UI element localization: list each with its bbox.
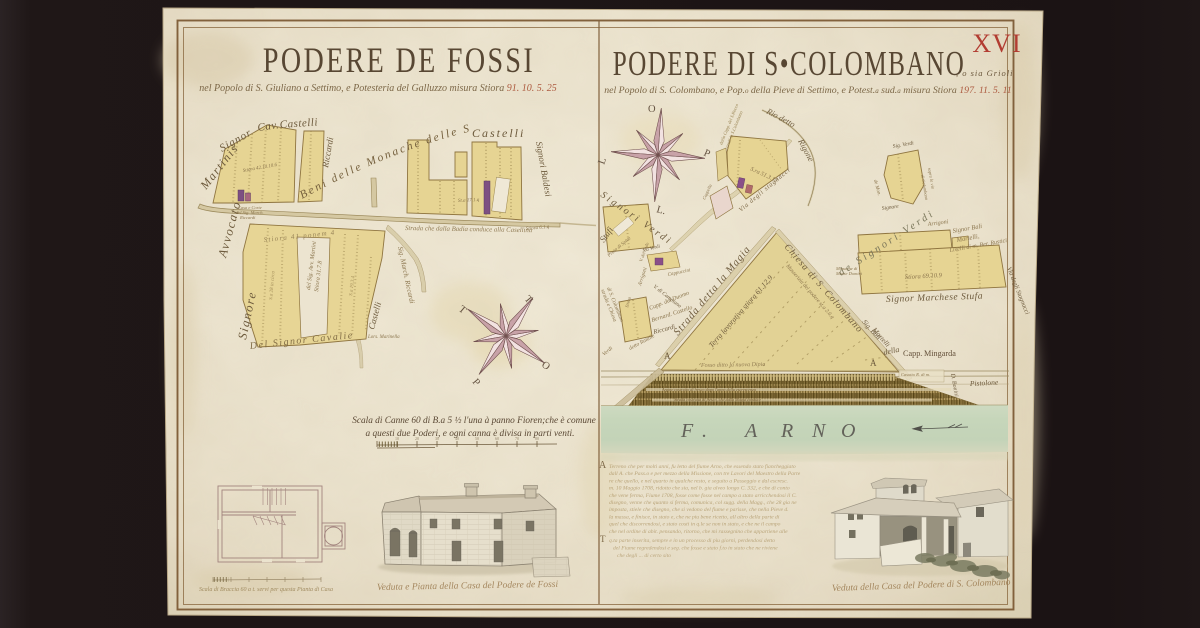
svg-text:la massa, e finisce, in stato: la massa, e finisce, in stato e, che ne … <box>609 513 780 520</box>
svg-text:20: 20 <box>415 436 419 441</box>
svg-text:80: 80 <box>535 436 539 441</box>
svg-text:Mingarda: Mingarda <box>924 349 956 358</box>
svg-text:Monte Domini: Monte Domini <box>835 271 863 276</box>
svg-text:quel che discorrendosi, e stat: quel che discorrendosi, e stato costi in… <box>609 522 781 528</box>
svg-text:40: 40 <box>455 436 459 441</box>
svg-text:del Fiume regredendosi e seg.: del Fiume regredendosi e seg. che fosse … <box>613 545 778 552</box>
svg-text:nel Popolo di S. Colombano, e: nel Popolo di S. Colombano, e Pop.o dell… <box>604 85 1011 96</box>
svg-text:disegno, venne che quanto si f: disegno, venne che quanto si ferma, comu… <box>609 499 797 506</box>
svg-text:70: 70 <box>515 436 519 441</box>
svg-text:T: T <box>600 534 606 544</box>
svg-text:dall A. che Pass.o e per mezzo: dall A. che Pass.o e per mezzo della Mis… <box>609 471 801 477</box>
svg-text:A: A <box>870 358 877 368</box>
svg-text:Pistolone: Pistolone <box>969 377 999 388</box>
svg-text:10: 10 <box>395 436 399 441</box>
svg-text:60: 60 <box>495 436 499 441</box>
svg-text:F: F <box>680 420 694 442</box>
svg-text:A: A <box>743 420 758 442</box>
svg-text:Castelli: Castelli <box>472 126 525 140</box>
svg-text:A: A <box>664 351 671 361</box>
svg-text:O: O <box>841 420 855 442</box>
svg-text:Fosso ditto la nuova Dipia: Fosso ditto la nuova Dipia <box>700 362 765 369</box>
svg-text:che nel ordine di abit. pensan: che nel ordine di abit. pensando, ritorn… <box>609 529 788 535</box>
svg-text:R: R <box>780 420 793 442</box>
svg-text:50: 50 <box>475 436 479 441</box>
svg-text:.: . <box>702 420 707 442</box>
svg-text:nel Popolo di S. Giuliano a Se: nel Popolo di S. Giuliano a Settimo, e P… <box>199 83 557 94</box>
svg-text:PODERE DE FOSSI: PODERE DE FOSSI <box>263 40 535 80</box>
svg-text:Lors. Marinella: Lors. Marinella <box>367 335 400 340</box>
svg-text:q.ta parte inserita, sempre e: q.ta parte inserita, sempre e in un proc… <box>609 538 775 544</box>
svg-text:imposta, stiele che disegno, c: imposta, stiele che disegno, che si vedo… <box>609 506 789 513</box>
svg-text:Casotto R. di m.: Casotto R. di m. <box>901 372 930 377</box>
svg-text:30: 30 <box>435 436 439 441</box>
svg-text:che vene ferma, Fiume 1708, fo: che vene ferma, Fiume 1708, fosse come f… <box>609 492 797 499</box>
svg-text:, o sia Grioli: , o sia Grioli <box>956 68 1013 78</box>
svg-text:Capp.: Capp. <box>903 349 922 358</box>
svg-text:XVI: XVI <box>972 29 1021 58</box>
svg-text:Argine costruito di fresco dop: Argine costruito di fresco dopo l'anno d… <box>661 387 756 392</box>
svg-text:che degli ... di certo sito: che degli ... di certo sito <box>617 553 671 559</box>
svg-text:Terreno che per molti anni, fu: Terreno che per molti anni, fu letto del… <box>609 463 796 470</box>
svg-text:Riccardi: Riccardi <box>239 215 256 220</box>
svg-text:re che quello, e nel quarto in: re che quello, e nel quarto in qualche r… <box>609 478 788 484</box>
svg-text:A: A <box>599 460 607 471</box>
svg-text:PODERE DI S•COLOMBANO: PODERE DI S•COLOMBANO <box>613 44 966 83</box>
svg-text:Scala di Braccia 60 a t. servi: Scala di Braccia 60 a t. servi per quest… <box>199 587 333 593</box>
svg-text:N: N <box>811 420 827 442</box>
svg-text:Scala di Canne 60 di B.a 5 ½ l: Scala di Canne 60 di B.a 5 ½ l'una à pan… <box>352 415 596 426</box>
svg-text:m. 10 Maggio 1708, ridotto che: m. 10 Maggio 1708, ridotto che sia, nel … <box>609 486 790 492</box>
svg-text:O: O <box>648 104 656 115</box>
